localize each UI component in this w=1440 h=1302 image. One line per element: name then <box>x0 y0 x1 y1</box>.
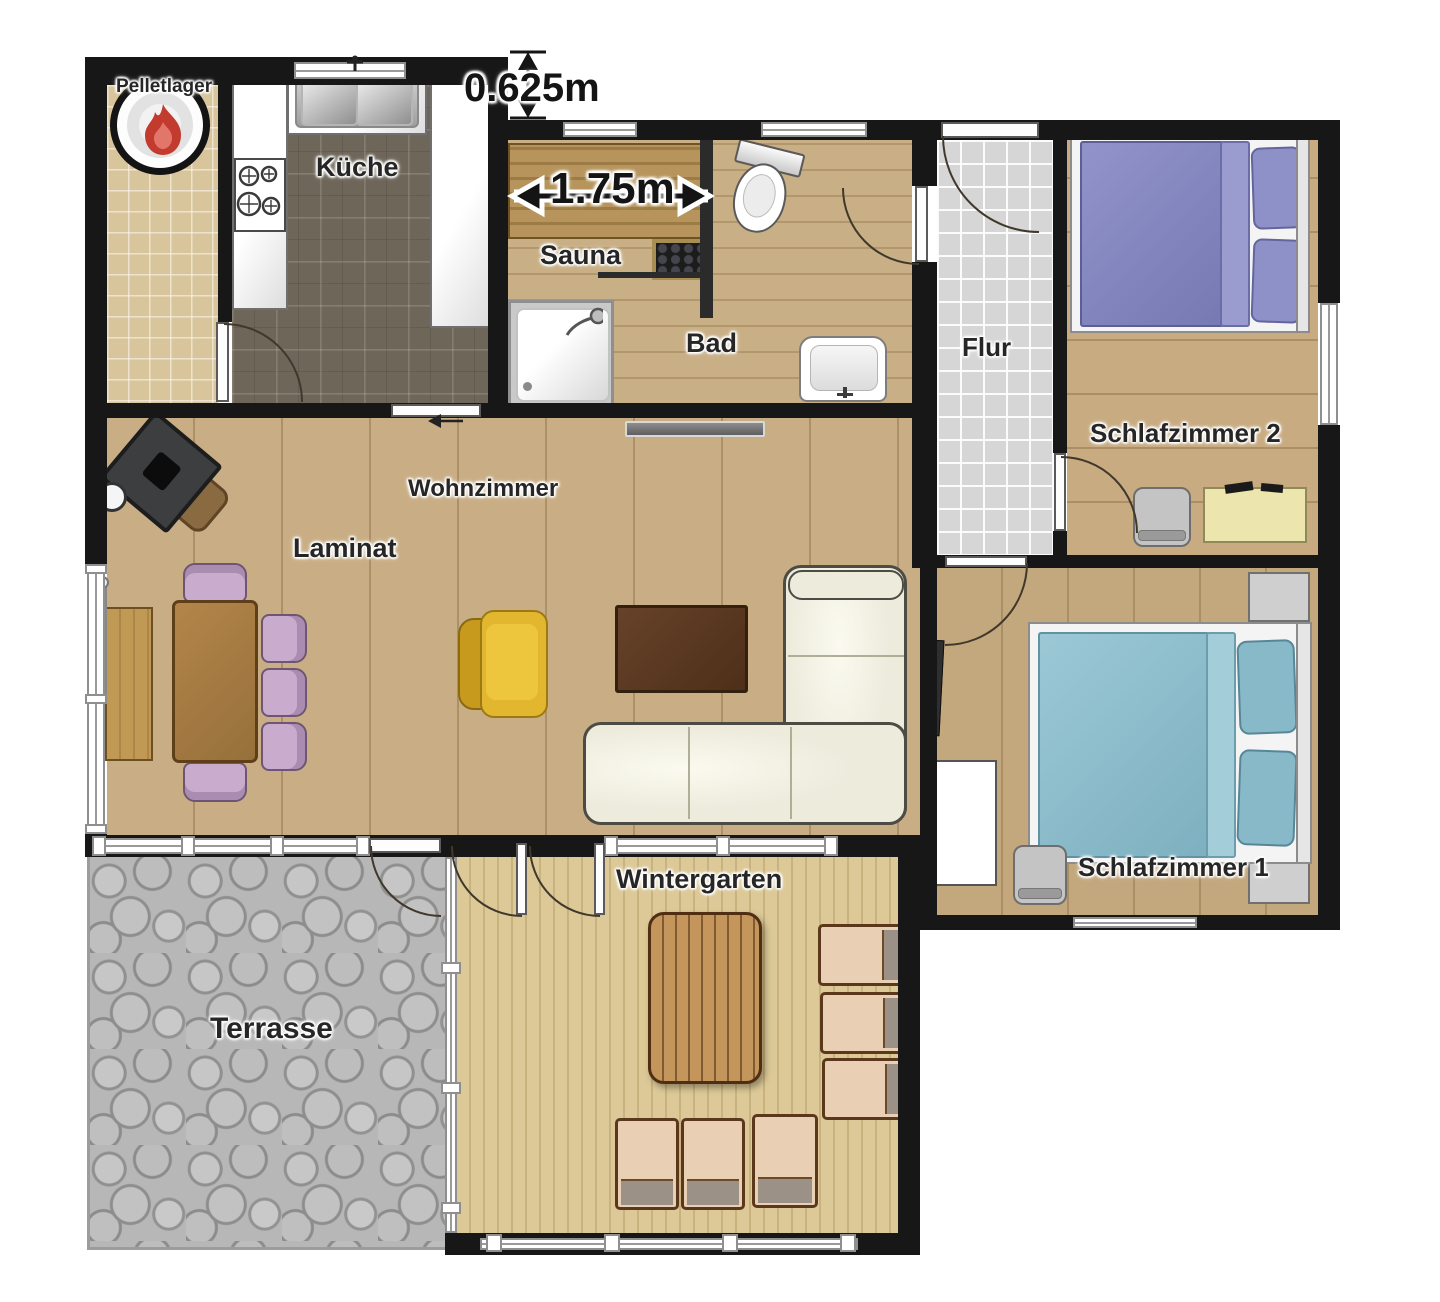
door-arc <box>945 563 1027 645</box>
room-label-sauna: Sauna <box>540 240 621 271</box>
door-arc <box>371 846 441 916</box>
room-label-schlafzimmer1: Schlafzimmer 1 <box>1078 852 1269 883</box>
slide-arrow-icon <box>428 414 463 428</box>
door-arc <box>1061 457 1137 533</box>
room-label-pelletlager: Pelletlager <box>116 76 212 98</box>
room-label-bad: Bad <box>686 328 737 359</box>
room-label-wohnzimmer: Wohnzimmer <box>408 475 558 503</box>
room-label-flur: Flur <box>962 332 1011 363</box>
room-label-kueche: Küche <box>316 152 399 183</box>
room-label-schlafzimmer2: Schlafzimmer 2 <box>1090 418 1281 449</box>
dimension-label-sauna-width: 1.75m <box>550 164 675 214</box>
door-arc <box>943 136 1039 232</box>
room-label-wintergarten: Wintergarten <box>616 864 782 895</box>
dimension-label-offset: 0.625m <box>464 66 600 111</box>
floor-plan: Pelletlager Küche Sauna Bad Flur Schlafz… <box>0 0 1440 1302</box>
door-arc <box>843 188 919 264</box>
door-arc <box>452 846 522 916</box>
door-swings-and-dimensions <box>0 0 1440 1302</box>
door-arc <box>224 324 302 402</box>
room-label-terrasse: Terrasse <box>210 1012 333 1046</box>
door-arc <box>530 846 600 916</box>
floor-label-laminat: Laminat <box>293 533 397 564</box>
